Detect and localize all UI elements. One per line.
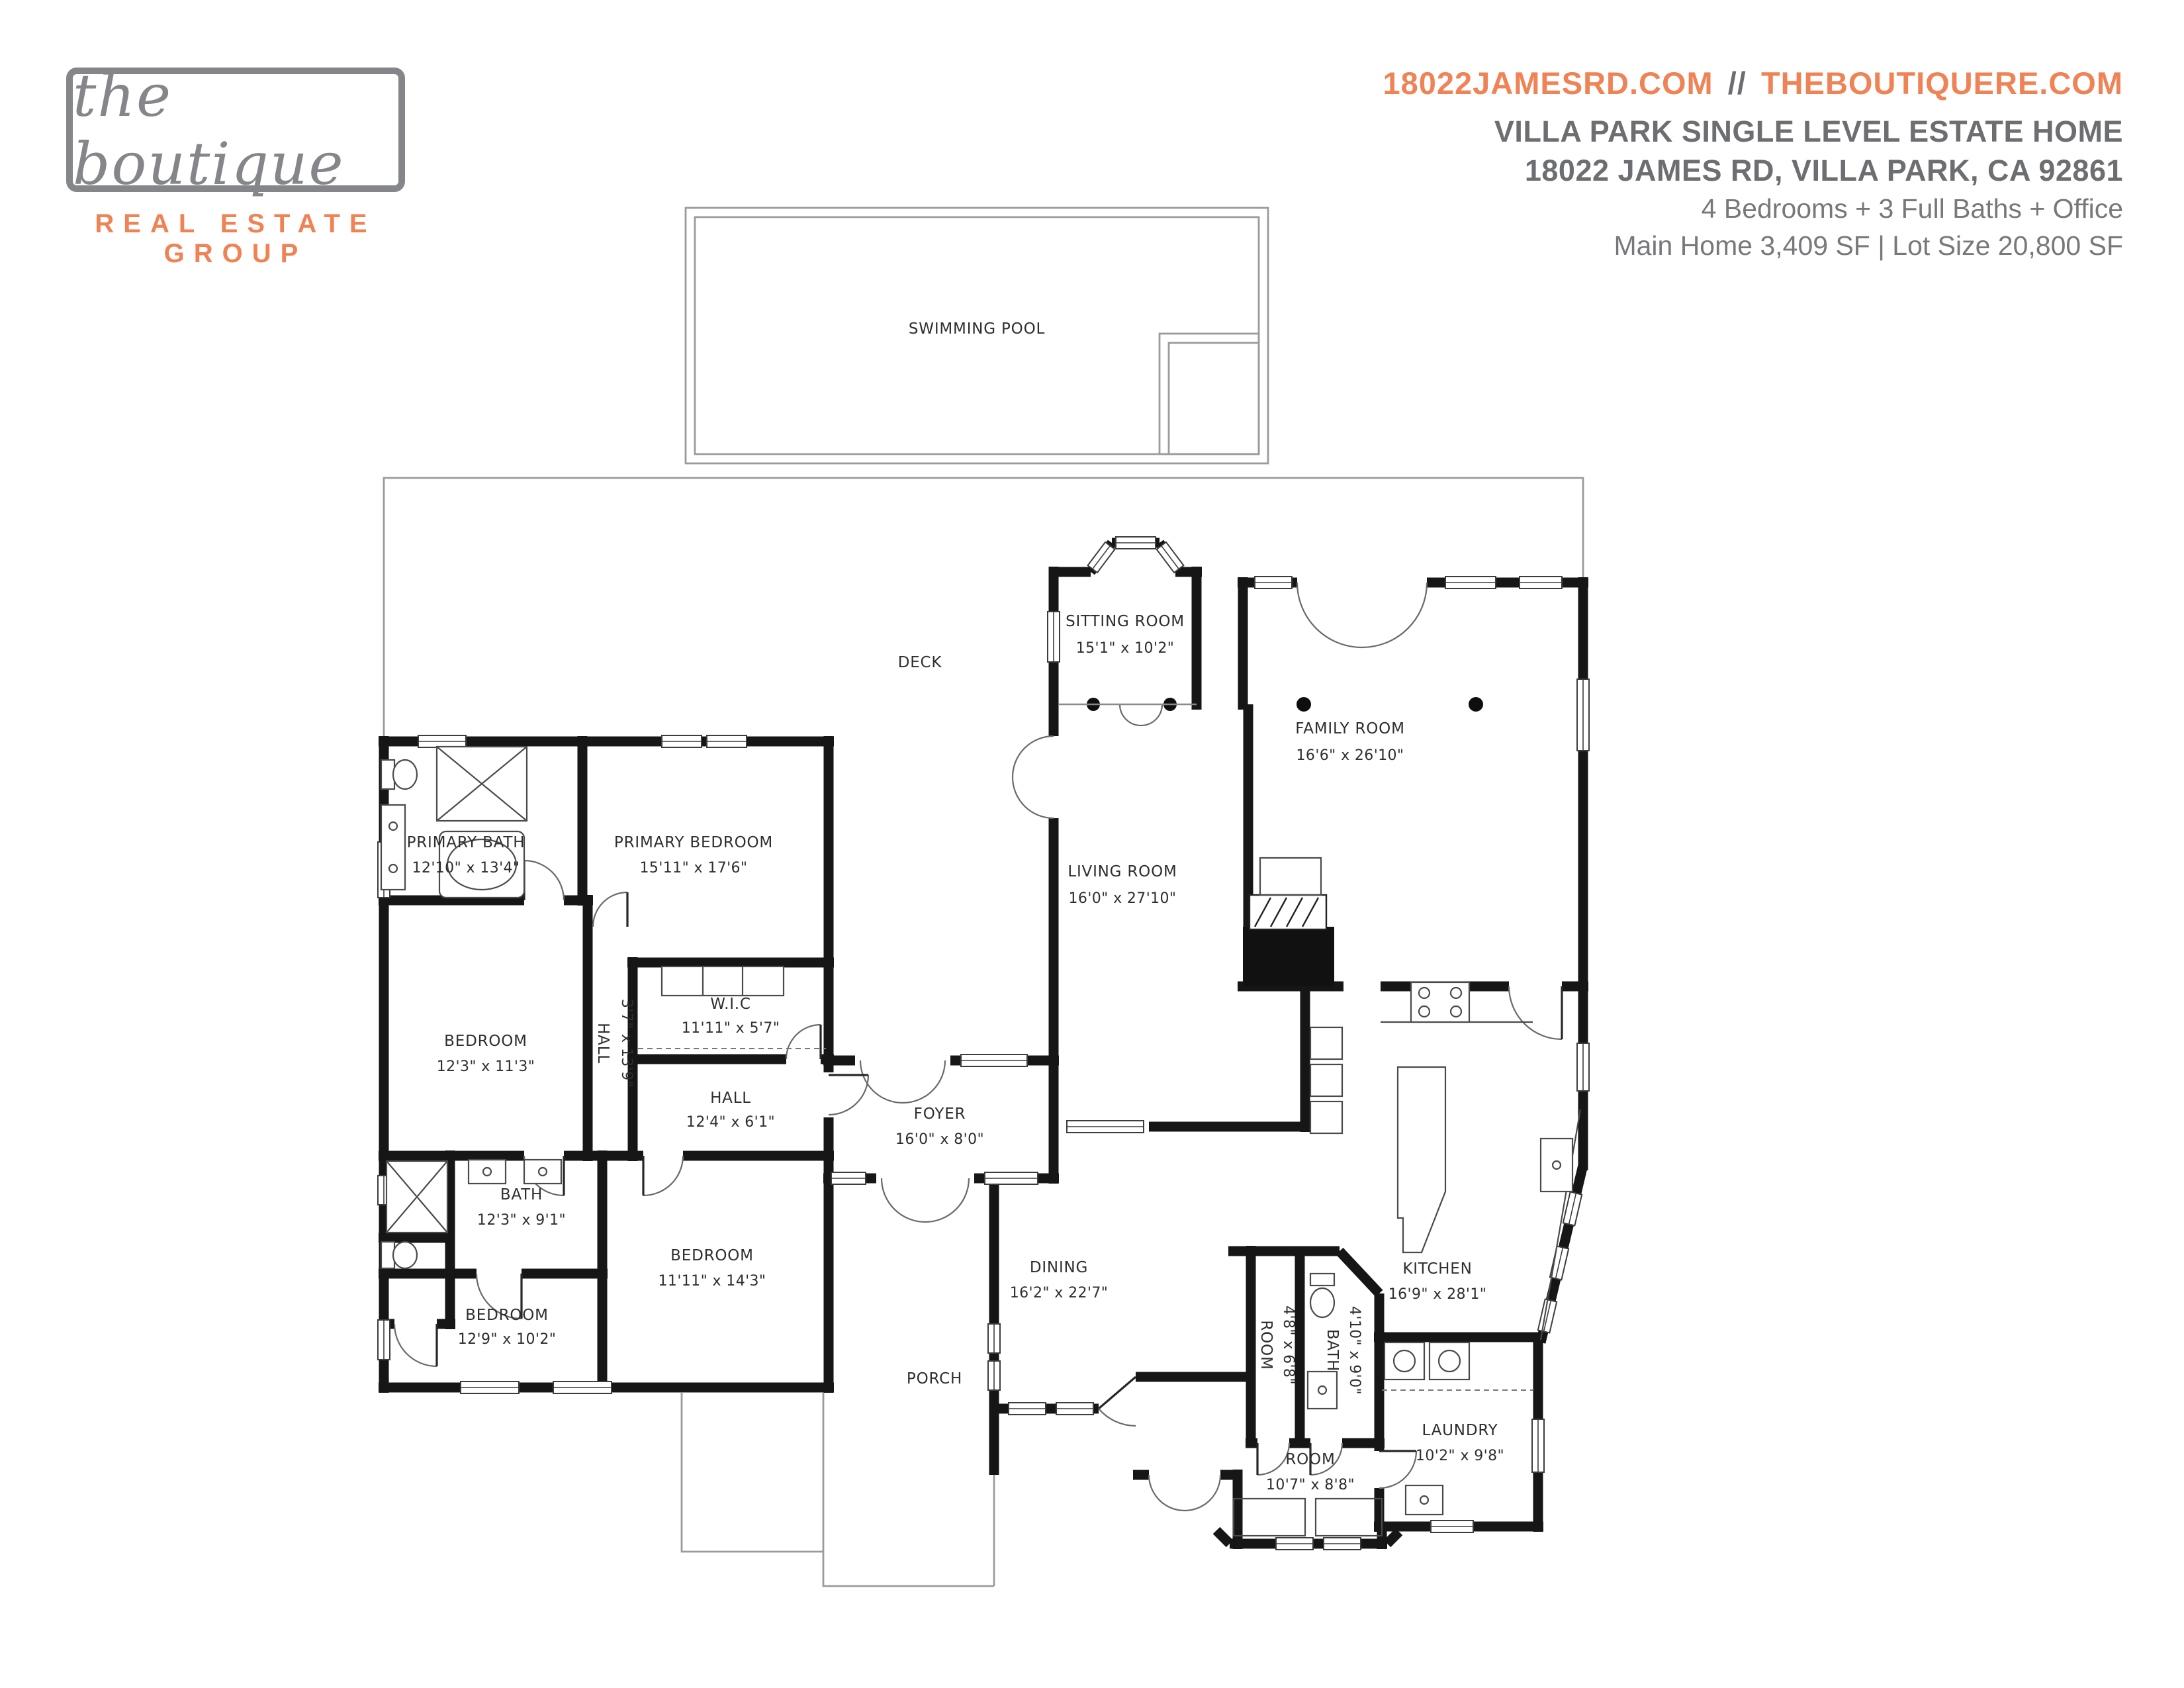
label-bath-hall: BATH xyxy=(500,1186,543,1203)
room-labels: SWIMMING POOL DECK SITTING ROOM 15'1" x … xyxy=(407,320,1504,1493)
label-hall-vertical: HALL xyxy=(594,1023,612,1064)
label-wic: W.I.C xyxy=(710,996,751,1013)
svg-text:4'8" x 6'8": 4'8" x 6'8" xyxy=(1280,1305,1297,1385)
svg-text:4'10" x 9'0": 4'10" x 9'0" xyxy=(1346,1306,1363,1395)
svg-text:15'1" x 10'2": 15'1" x 10'2" xyxy=(1076,640,1175,657)
deck-outline xyxy=(384,478,1583,1586)
label-hall: HALL xyxy=(710,1090,751,1107)
label-kitchen: KITCHEN xyxy=(1402,1260,1472,1278)
svg-text:12'10" x 13'4": 12'10" x 13'4" xyxy=(412,860,520,876)
svg-text:16'0" x 27'10": 16'0" x 27'10" xyxy=(1069,890,1177,907)
label-bedroom-left: BEDROOM xyxy=(444,1033,527,1050)
windows xyxy=(378,537,1589,1550)
svg-text:10'2" x 9'8": 10'2" x 9'8" xyxy=(1416,1448,1504,1464)
svg-text:12'9" x 10'2": 12'9" x 10'2" xyxy=(458,1331,557,1348)
label-swimming-pool: SWIMMING POOL xyxy=(909,320,1045,338)
svg-text:3'7" x 13'9": 3'7" x 13'9" xyxy=(618,999,635,1088)
svg-text:16'2" x 22'7": 16'2" x 22'7" xyxy=(1010,1285,1109,1301)
label-foyer: FOYER xyxy=(914,1105,966,1123)
svg-text:15'11" x 17'6": 15'11" x 17'6" xyxy=(640,860,748,876)
label-family: FAMILY ROOM xyxy=(1295,720,1404,737)
label-room-rear: ROOM xyxy=(1285,1451,1335,1468)
svg-text:12'3" x 11'3": 12'3" x 11'3" xyxy=(437,1058,535,1075)
label-sitting: SITTING ROOM xyxy=(1066,613,1185,630)
label-laundry: LAUNDRY xyxy=(1422,1422,1498,1439)
svg-text:16'0" x 8'0": 16'0" x 8'0" xyxy=(895,1131,984,1148)
label-deck: DECK xyxy=(898,654,942,671)
walls xyxy=(379,543,1588,1549)
label-bedroom-lower-left: BEDROOM xyxy=(465,1307,549,1324)
label-primary-bath: PRIMARY BATH xyxy=(407,834,525,851)
fireplace xyxy=(1243,858,1334,986)
label-dining: DINING xyxy=(1030,1259,1088,1276)
svg-text:16'6" x 26'10": 16'6" x 26'10" xyxy=(1297,747,1404,764)
label-bedroom-center: BEDROOM xyxy=(670,1247,754,1264)
svg-text:12'3" x 9'1": 12'3" x 9'1" xyxy=(477,1212,566,1229)
label-primary-bedroom: PRIMARY BEDROOM xyxy=(614,834,773,851)
svg-text:11'11" x 5'7": 11'11" x 5'7" xyxy=(682,1020,780,1037)
svg-text:12'4" x 6'1": 12'4" x 6'1" xyxy=(686,1114,775,1131)
svg-text:16'9" x 28'1": 16'9" x 28'1" xyxy=(1388,1286,1487,1303)
label-room-small: ROOM xyxy=(1257,1320,1275,1370)
label-porch: PORCH xyxy=(907,1370,962,1387)
svg-text:11'11" x 14'3": 11'11" x 14'3" xyxy=(659,1273,766,1289)
floor-plan-svg: SWIMMING POOL DECK SITTING ROOM 15'1" x … xyxy=(0,0,2184,1688)
svg-text:10'7" x 8'8": 10'7" x 8'8" xyxy=(1266,1477,1355,1493)
label-bath-small: BATH xyxy=(1324,1329,1341,1372)
label-living: LIVING ROOM xyxy=(1068,863,1177,880)
